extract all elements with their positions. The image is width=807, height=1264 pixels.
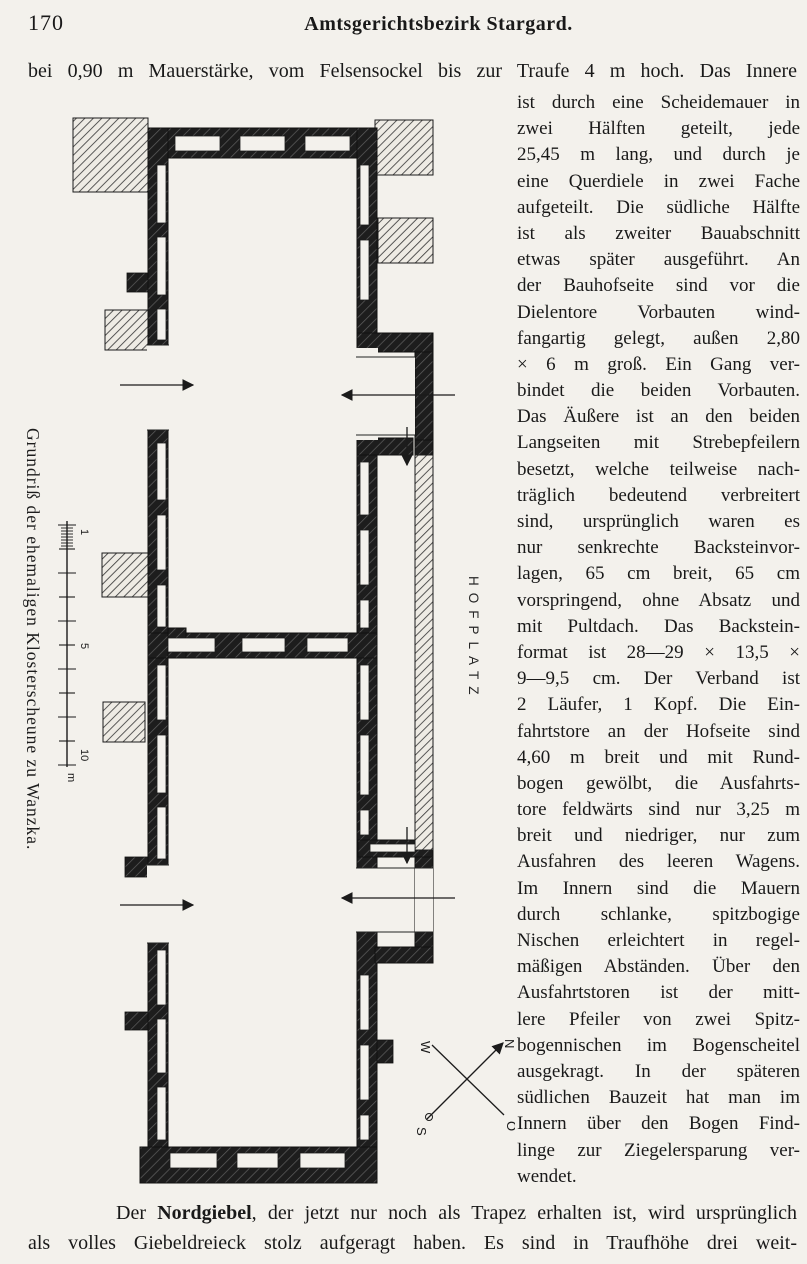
- column-text-line: 9—9,5 cm. Der Verband ist: [517, 666, 800, 692]
- column-text-line: besetzt, welche teilweise nach-: [517, 457, 800, 483]
- column-text-line: südlichen Bauzeit hat man im: [517, 1085, 800, 1111]
- closing-lead: Der: [116, 1202, 157, 1224]
- right-text-column: ist durch eine Scheidemauer inzwei Hälft…: [517, 90, 800, 1190]
- column-text-line: lagen, 65 cm breit, 65 cm: [517, 561, 800, 587]
- scale-mark-1: 1: [78, 529, 90, 535]
- column-text-line: mäßigen Abständen. Über den: [517, 954, 800, 980]
- column-text-line: fahrtstore an der Hofseite sind: [517, 719, 800, 745]
- column-text-line: ist durch eine Scheidemauer in: [517, 90, 800, 116]
- column-text-line: tore feldwärts sind nur 3,25 m: [517, 797, 800, 823]
- corridor-outer-wall: [415, 455, 433, 850]
- building-walls: [140, 128, 433, 1183]
- northeast-annex: [375, 120, 433, 175]
- column-text-line: bogennischen im Bogenscheitel: [517, 1033, 800, 1059]
- compass-south-label: S: [414, 1127, 429, 1136]
- column-text-line: bindet die beiden Vorbauten.: [517, 378, 800, 404]
- closing-line-2: als volles Giebeldreieck stolz aufgeragt…: [28, 1228, 797, 1258]
- closing-line-1-rest: , der jetzt nur noch als Trapez erhalten…: [252, 1202, 797, 1224]
- page-number: 170: [28, 10, 64, 36]
- intro-paragraph-line: bei 0,90 m Mauerstärke, vom Felsensockel…: [28, 60, 797, 83]
- column-text-line: Innern über den Bogen Find-: [517, 1111, 800, 1137]
- compass-north-label: N: [502, 1039, 515, 1048]
- column-text-line: sind, ursprünglich waren es: [517, 509, 800, 535]
- scale-mark-10: 10: [78, 749, 90, 761]
- column-text-line: ausgekragt. In der späteren: [517, 1059, 800, 1085]
- column-text-line: format ist 28—29 × 13,5 ×: [517, 640, 800, 666]
- column-text-line: vorspringend, ohne Absatz und: [517, 588, 800, 614]
- column-text-line: Dielentore Vorbauten wind-: [517, 300, 800, 326]
- column-text-line: ist als zweiter Bauabschnitt: [517, 221, 800, 247]
- west-widened-buttress: [105, 310, 148, 350]
- column-text-line: lere Pfeiler von zwei Spitz-: [517, 1007, 800, 1033]
- scale-bar: 1 5 10 m: [58, 521, 90, 782]
- northwest-annex: [73, 118, 148, 192]
- column-text-line: Ausfahrtstoren ist der mitt-: [517, 980, 800, 1006]
- column-text-line: etwas später ausgeführt. An: [517, 247, 800, 273]
- column-text-line: × 6 m groß. Ein Gang ver-: [517, 352, 800, 378]
- column-text-line: zwei Hälften geteilt, jede: [517, 116, 800, 142]
- column-text-line: Nischen erleichtert in regel-: [517, 928, 800, 954]
- column-text-line: durch schlanke, spitzbogige: [517, 902, 800, 928]
- column-text-line: eine Querdiele in zwei Fache: [517, 169, 800, 195]
- column-text-line: Das Äußere ist an den beiden: [517, 404, 800, 430]
- column-text-line: linge zur Ziegelersparung ver-: [517, 1138, 800, 1164]
- column-text-line: nur senkrechte Backsteinvor-: [517, 535, 800, 561]
- column-text-line: Ausfahren des leeren Wagens.: [517, 849, 800, 875]
- floor-plan-figure: N W O S 1 5 10 m: [55, 105, 515, 1200]
- compass-west-label: W: [418, 1041, 433, 1054]
- column-text-line: wendet.: [517, 1164, 800, 1190]
- column-text-line: der Bauhofseite sind vor die: [517, 273, 800, 299]
- west-widened-buttress: [103, 702, 145, 742]
- scale-unit-label: m: [65, 773, 77, 782]
- east-widened-buttress: [378, 218, 433, 263]
- running-header: Amtsgerichtsbezirk Stargard.: [70, 13, 807, 36]
- column-text-line: Langseiten mit Strebepfeilern: [517, 430, 800, 456]
- closing-bold-term: Nordgiebel: [157, 1202, 251, 1224]
- column-text-line: fangartig gelegt, außen 2,80: [517, 326, 800, 352]
- closing-paragraph: Der Nordgiebel, der jetzt nur noch als T…: [28, 1198, 797, 1258]
- west-widened-buttress: [102, 553, 148, 597]
- upper-vorbau-wall: [415, 352, 433, 440]
- column-text-line: breit und niedriger, nur zum: [517, 823, 800, 849]
- column-text-line: mit Pultdach. Das Backstein-: [517, 614, 800, 640]
- column-text-line: aufgeteilt. Die südliche Hälfte: [517, 195, 800, 221]
- upper-vorbau-wall: [357, 438, 413, 455]
- column-text-line: bogen gewölbt, die Ausfahrts-: [517, 771, 800, 797]
- column-text-line: 25,45 m lang, und durch je: [517, 142, 800, 168]
- scale-mark-5: 5: [78, 643, 90, 649]
- compass-east-label: O: [504, 1121, 515, 1131]
- compass-rose: N W O S: [414, 1039, 515, 1136]
- closing-line-1: Der Nordgiebel, der jetzt nur noch als T…: [28, 1198, 797, 1228]
- column-text-line: 2 Läufer, 1 Kopf. Die Ein-: [517, 692, 800, 718]
- column-text-line: 4,60 m breit und mit Rund-: [517, 745, 800, 771]
- figure-side-caption: Grundriß der ehemaligen Klosterscheune z…: [22, 428, 43, 850]
- column-text-line: Im Innern sind die Mauern: [517, 876, 800, 902]
- lower-vorbau-wall: [375, 947, 433, 963]
- column-text-line: träglich bedeutend verbreitert: [517, 483, 800, 509]
